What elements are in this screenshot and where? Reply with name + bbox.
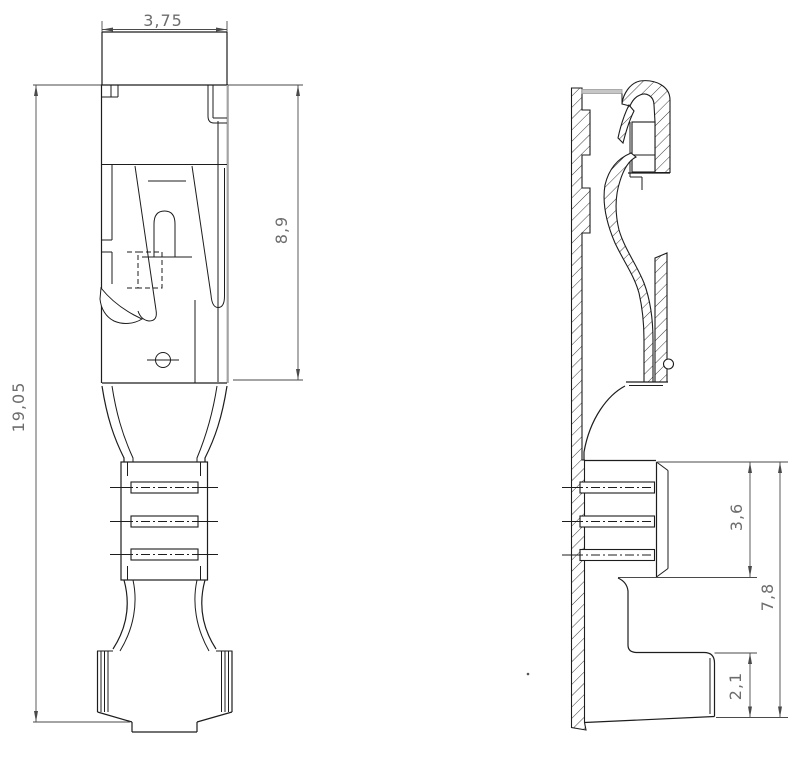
dim-tab-height: 2,1 [715,653,758,718]
serration-bar [110,516,218,527]
wire-crimp-barrel [110,462,218,580]
dim-rear-section-height-label: 7,8 [758,583,777,611]
arrow-left-icon [102,28,113,32]
top-seam-strip [582,90,628,104]
side-wall-section [572,88,591,730]
dim-wire-crimp-height: 3,6 [727,462,752,577]
side-view: 3,6 7,8 2,1 [527,81,788,730]
terminal-two-view-drawing: 3,75 19,05 8,9 [0,0,808,758]
arrow-up-icon [778,462,782,473]
contact-dimple-arch [142,211,192,257]
transition-neck [102,386,227,462]
arrow-down-icon [34,711,38,722]
lance-window [102,85,118,97]
technical-drawing-canvas: 3,75 19,05 8,9 [0,0,808,758]
insulation-crimp-wings [97,580,233,712]
notch-detail [664,359,674,369]
dim-tab-height-label: 2,1 [726,672,745,700]
retention-slot [208,85,227,123]
side-transition [584,382,668,461]
dim-wire-crimp-height-label: 3,6 [727,503,746,531]
serration-bar [110,549,218,560]
spring-right-slant [192,166,211,295]
stray-dot [527,673,530,676]
arrow-down-icon [748,707,752,718]
arrow-right-icon [216,28,227,32]
dim-overall-length-label: 19,05 [9,382,28,433]
arrow-down-icon [296,369,300,380]
dim-receptacle-height-label: 8,9 [272,216,291,244]
spring-leaf-section [604,153,653,382]
arrow-down-icon [778,707,782,718]
arrow-up-icon [296,85,300,96]
inspection-hole [147,353,179,368]
dim-receptacle-height: 8,9 [228,85,303,380]
dim-top-width-label: 3,75 [143,11,183,30]
serration-bar [110,482,218,493]
lance-beak [100,288,142,323]
front-view: 3,75 19,05 8,9 [9,11,303,732]
arrow-up-icon [34,85,38,96]
contact-spring [100,121,227,383]
arrow-up-icon [748,462,752,473]
arrow-up-icon [748,653,752,664]
back-strip-section [655,253,674,382]
arrow-down-icon [748,566,752,577]
rear-step [585,578,715,723]
dim-top-width: 3,75 [102,11,227,32]
mating-box-outline [101,32,228,383]
